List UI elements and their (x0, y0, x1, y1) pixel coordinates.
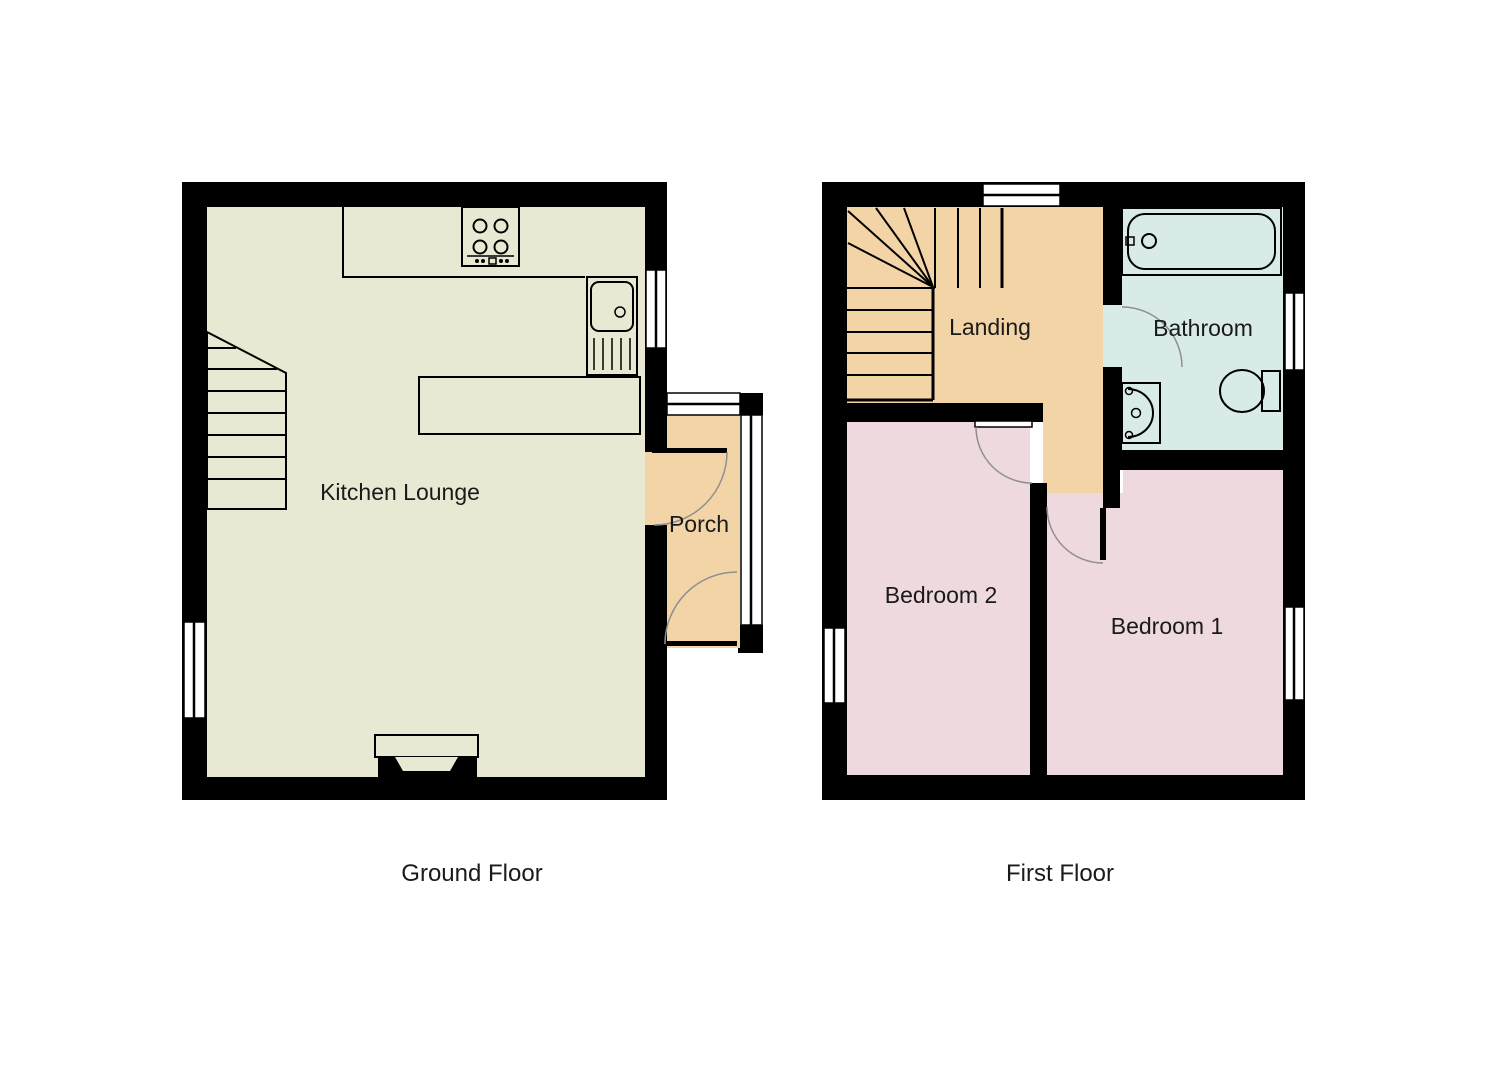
room-label-porch: Porch (669, 511, 729, 537)
lounge-window (184, 622, 205, 718)
bedroom1-door-leaf (1100, 508, 1106, 560)
room-label-kitchen-lounge: Kitchen Lounge (320, 479, 480, 505)
room-label-landing: Landing (949, 314, 1031, 340)
bedroom2-window (824, 628, 845, 703)
first-floor-plan: Landing Bathroom Bedroom 2 Bedroom 1 Fir… (822, 182, 1305, 887)
first-floor-caption: First Floor (1006, 860, 1114, 887)
porch-door-opening (645, 452, 667, 525)
porch-top-window (667, 393, 740, 415)
porch-internal-door-leaf (652, 448, 727, 453)
entrance-door-leaf (667, 641, 737, 646)
room-label-bedroom2: Bedroom 2 (885, 582, 998, 608)
kitchen-window (646, 270, 666, 348)
bedroom1-window (1285, 607, 1304, 700)
room-label-bathroom: Bathroom (1153, 315, 1253, 341)
porch-side-window (741, 415, 762, 625)
ground-floor-plan: Kitchen Lounge Porch Ground Floor (182, 182, 763, 887)
landing-window (983, 184, 1060, 206)
bathroom-window (1285, 293, 1304, 370)
room-label-bedroom1: Bedroom 1 (1111, 613, 1224, 639)
ground-floor-caption: Ground Floor (401, 860, 542, 887)
floorplan-canvas: Kitchen Lounge Porch Ground Floor (0, 0, 1490, 1080)
floorplan-page: Kitchen Lounge Porch Ground Floor (0, 0, 1490, 1080)
bedroom2-door-leaf (975, 421, 1032, 427)
